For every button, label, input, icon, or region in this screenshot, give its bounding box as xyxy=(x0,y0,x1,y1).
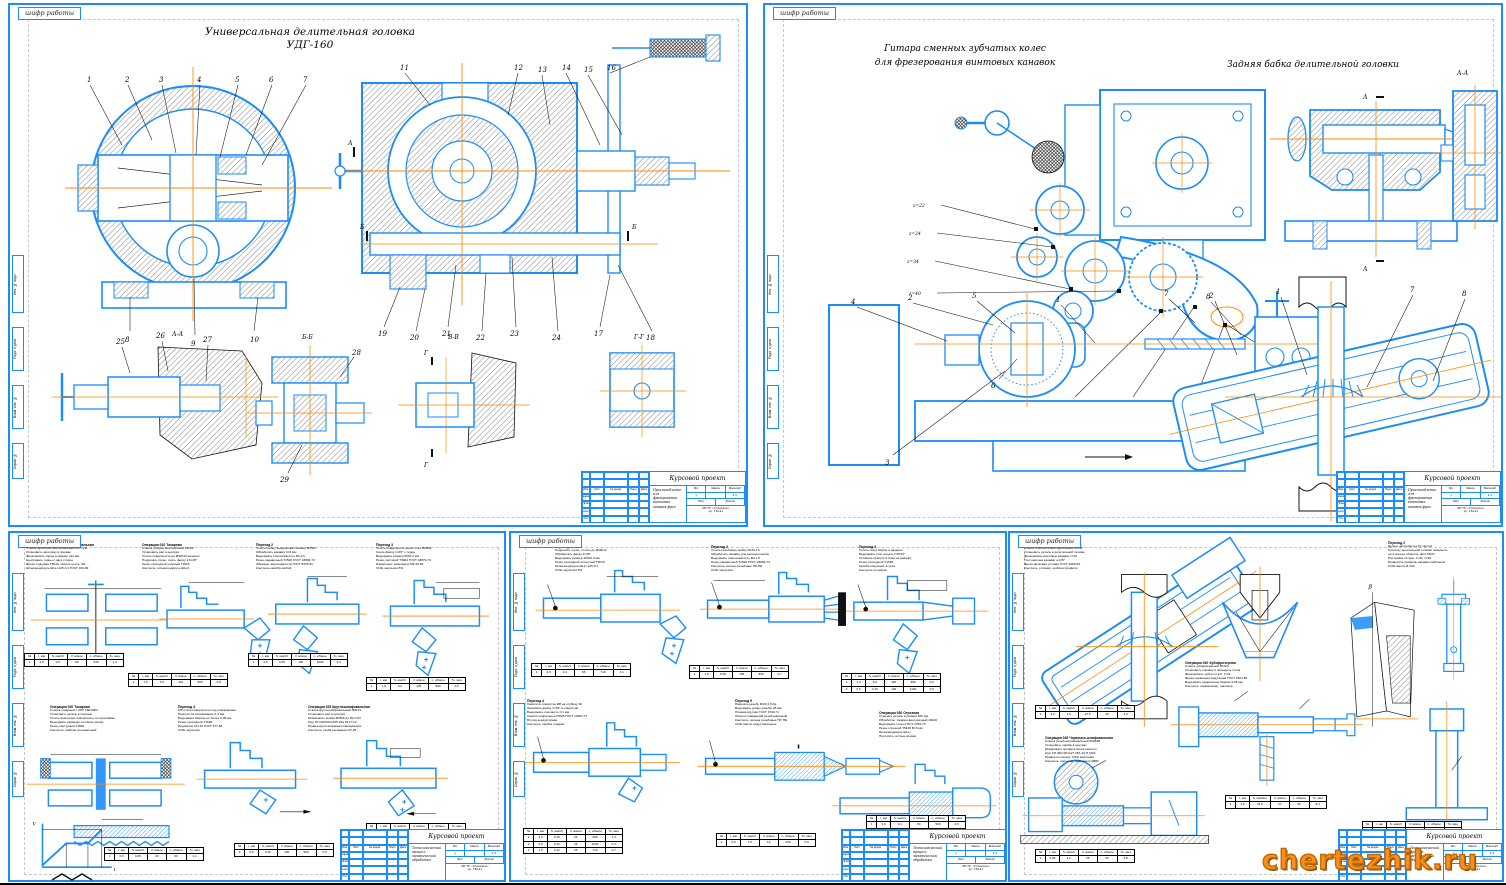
table-cell: 0,8 xyxy=(210,680,227,686)
frame-strip: Инв. № подл. Подп. и дата Взам. инв. № С… xyxy=(767,255,779,479)
title-block-project: Курсовой проект xyxy=(650,472,745,486)
svg-text:10: 10 xyxy=(250,336,259,344)
table-cell: 0,6 xyxy=(798,840,815,846)
svg-text:z=22: z=22 xyxy=(912,203,925,209)
operation-card: Переход 4 Сверлить отверстие Ø8 на глуби… xyxy=(527,699,677,727)
table-cell: 0,1 xyxy=(890,822,909,828)
svg-text:15: 15 xyxy=(584,66,593,74)
watermark: chertezhik.ru xyxy=(1262,845,1478,876)
svg-text:4: 4 xyxy=(196,76,201,84)
sketch-vertical-stand xyxy=(1406,701,1487,826)
table-cell: 0,9 xyxy=(948,822,965,828)
operation-body: Станок токарный с ЧПУ 16К20Ф3 Установить… xyxy=(50,709,168,733)
drawing-collage: { "page": { "watermark": "chertezhik.ru"… xyxy=(0,0,1506,885)
svg-text:1: 1 xyxy=(87,76,91,84)
operation-body: Станок токарно-винторезный 16К20 Установ… xyxy=(142,547,248,571)
param-table: №t, ммS, мм/обV, м/минn, об/минТо, мин13… xyxy=(1035,705,1135,719)
table-cell: 900 xyxy=(428,684,448,690)
title-block-project: Курсовой проект xyxy=(910,830,1005,844)
svg-text:25: 25 xyxy=(115,338,125,346)
table-cell: 1 xyxy=(717,840,727,846)
table-cell: 0,05 xyxy=(128,854,147,860)
table-cell: 1 xyxy=(532,670,542,676)
table-cell: 240 xyxy=(778,840,798,846)
table-cell: 30 xyxy=(147,854,166,860)
title-block-org: МГТУ «Станкин» гр. ТМ-41 xyxy=(1442,506,1500,523)
table-cell: 60 xyxy=(909,822,928,828)
param-table: №t, ммS, мм/обV, м/минn, об/минТо, мин11… xyxy=(128,673,228,687)
svg-text:7: 7 xyxy=(1164,290,1169,298)
table-cell: 1,5 xyxy=(534,847,548,853)
svg-text:2: 2 xyxy=(124,76,130,84)
table-row: 13,21,627,5404,2 xyxy=(1036,712,1135,718)
operation-card: Переход 2 Точить шейку, выдерживая разме… xyxy=(256,543,368,571)
title-block-mini-grid: Лит.МассаМасштаб у1:1 ЛистЛистов МГТУ «С… xyxy=(687,486,745,522)
sketch-drill xyxy=(698,741,906,781)
operation-body: Делить заготовку на 10 частей Рукоятку д… xyxy=(1388,545,1500,569)
svg-text:z=24: z=24 xyxy=(908,231,921,237)
param-table: №t, ммS, мм/обV, м/минn, об/минТо, мин14… xyxy=(523,828,623,854)
title-block-mini-grid: Лит.МассаМасштаб у1:1 ЛистЛистов МГТУ «С… xyxy=(446,844,504,880)
table-cell: 1,2 xyxy=(1059,856,1078,862)
table-row: 11,50,251058600,7 xyxy=(690,672,789,678)
operation-card: Операция 045 Червячно-шлифовальная Стано… xyxy=(1045,736,1195,764)
sheet-code-box: шифр работы xyxy=(18,535,81,548)
param-table: №t, ммS, мм/обV, м/минn, об/минТо, мин11… xyxy=(366,677,466,691)
table-cell: 1 xyxy=(129,680,139,686)
table-cell: 1,0 xyxy=(377,684,391,690)
sketch-turning xyxy=(197,743,312,814)
svg-text:3: 3 xyxy=(885,459,890,467)
sketch-grinding-setup xyxy=(1021,760,1209,843)
title-block: Изм.Лист№ докум.Подп.Дата Разраб. Пров. … xyxy=(581,471,746,523)
title-block-slot: Изм.Лист№ докум.Подп.Дата Разраб. Пров. … xyxy=(1336,471,1501,523)
table-row: 12,00,4957101,1 xyxy=(532,670,631,676)
sketch-turning xyxy=(383,580,490,675)
operation-card: Операция 030 Отрезная Отрезать деталь в … xyxy=(879,711,1001,739)
svg-text:Г: Г xyxy=(423,350,429,357)
param-table: №t, ммS, мм/обV, м/минn, об/минТо, мин10… xyxy=(104,847,204,861)
title-block-revision-grid: Изм.Лист№ докум.Подп.Дата Разраб. Пров. … xyxy=(842,830,910,880)
operation-card: Операция 010 Токарная Станок токарно-вин… xyxy=(142,543,248,571)
frame-strip: Инв. № подл. Подп. и дата Взам. инв. № С… xyxy=(1012,573,1024,797)
sketch-double-shaft-2 xyxy=(27,754,185,845)
table-cell: 0,5 xyxy=(259,660,273,666)
table-cell: 1100 xyxy=(903,686,923,692)
table-cell: 1 xyxy=(1036,712,1046,718)
title-block: Изм.Лист№ докум.Подп.Дата Разраб. Пров. … xyxy=(841,829,1006,881)
table-cell: 0,5 xyxy=(48,660,67,666)
table-cell: 1 xyxy=(25,660,35,666)
operation-card: Переход 3 Точить конус Морзе 2 начерно В… xyxy=(859,545,989,573)
param-table: №t, ммS, мм/обV, м/минn, об/минТо, мин10… xyxy=(234,843,334,857)
param-table: №t, ммS, мм/обV, м/минn, об/минТо, мин10… xyxy=(716,833,816,847)
operation-card: Переход 2 Делить заготовку на 10 частей … xyxy=(1388,541,1500,569)
table-cell: 27,5 xyxy=(1078,712,1097,718)
frame-strip: Инв. № подл. Подп. и дата Взам. инв. № С… xyxy=(12,255,24,479)
operation-body: Станок резьбошлифовальный 5К822В Установ… xyxy=(1045,740,1195,764)
svg-text:А: А xyxy=(1362,266,1368,273)
svg-text:А: А xyxy=(347,140,353,147)
svg-text:24: 24 xyxy=(551,334,561,342)
table-cell: 0,15 xyxy=(865,686,884,692)
view-tailstock: А А xyxy=(1270,94,1481,273)
table-cell: 27 xyxy=(1270,802,1289,808)
table-row: 10,30,0530632,1 xyxy=(105,854,204,860)
table-cell: 1 xyxy=(105,854,115,860)
table-cell: 0,12 xyxy=(547,847,566,853)
operation-body: Точить резьбовую шейку М16×1,5 Обработат… xyxy=(711,549,839,573)
svg-text:Б-Б: Б-Б xyxy=(301,334,313,341)
sketch-gauge xyxy=(1438,576,1470,679)
table-cell: 35 xyxy=(1078,856,1097,862)
svg-text:17: 17 xyxy=(594,330,603,338)
table-cell: 1,2 xyxy=(106,660,123,666)
title-block-project: Курсовой проект xyxy=(1405,472,1500,486)
sketch-taper-turning xyxy=(846,576,988,673)
table-cell: 63 xyxy=(1097,856,1117,862)
operation-body: Точить конус Морзе 2 начерно Выдержать у… xyxy=(859,549,989,573)
svg-text:28: 28 xyxy=(351,349,361,357)
table-cell: 0,9 xyxy=(727,840,741,846)
table-cell: 1,1 xyxy=(613,670,630,676)
table-cell: 0,8 xyxy=(245,850,259,856)
table-cell: 0,3 xyxy=(115,854,129,860)
sheet-code-box: шифр работы xyxy=(18,7,81,20)
svg-text:2: 2 xyxy=(1208,292,1214,300)
operation-card: Переход 4 Обточить поверхность под шлифо… xyxy=(178,705,296,733)
param-table: №t, ммS, мм/обV, м/минn, об/минТо, мин10… xyxy=(248,653,348,667)
table-row: 11,00,21259000,6 xyxy=(367,684,466,690)
sketch-turning xyxy=(700,573,846,626)
detail-view-3: В-В Г Г xyxy=(398,334,530,469)
operation-body: Точить поверхность начисто до Ø28h9 Снят… xyxy=(376,547,496,571)
title-block-revision-grid: Изм.Лист№ докум.Подп.Дата Разраб. Пров. … xyxy=(341,830,409,880)
operation-card: Переход 2 Точить резьбовую шейку М16×1,5… xyxy=(711,545,839,573)
table-cell: 0,05 xyxy=(1046,856,1060,862)
operation-body: Отрезать деталь в размер 180 мм Обработк… xyxy=(879,715,1001,739)
table-cell: 710 xyxy=(593,670,613,676)
operation-card: Переход 5 Нарезать резьбу М16×1,5-6g Выд… xyxy=(735,699,869,727)
table-row: 10,051,235636,8 xyxy=(1036,856,1135,862)
sheet2-drawing: Гитара сменных зубчатых колес для фрезер… xyxy=(765,5,1501,525)
table-cell: 3 xyxy=(524,847,534,853)
svg-text:29: 29 xyxy=(279,476,289,484)
operation-card: Операция 040 Зубофрезерная Станок зубофр… xyxy=(1185,661,1345,689)
title-block-project: Курсовой проект xyxy=(1407,830,1502,844)
table-cell: 0,4 xyxy=(330,660,347,666)
cut-mark xyxy=(50,870,110,884)
sheet-udg-160: шифр работы Инв. № подл. Подп. и дата Вз… xyxy=(8,3,748,527)
svg-text:3: 3 xyxy=(159,76,164,84)
svg-text:z=34: z=34 xyxy=(906,259,919,265)
table-cell: 120 xyxy=(277,850,296,856)
table-row: 10,80,151209500,5 xyxy=(235,850,334,856)
detail-view-2: Б-Б 28 29 xyxy=(248,334,372,484)
title-block-org: МГТУ «Станкин» гр. ТМ-41 xyxy=(687,506,745,523)
svg-text:27: 27 xyxy=(202,336,212,344)
sheet2-subtitle: для фрезерования винтовых канавок xyxy=(875,58,1056,68)
sketch-worm-shaft xyxy=(1171,691,1363,786)
table-cell: 1 xyxy=(690,672,700,678)
svg-text:4: 4 xyxy=(850,298,855,306)
title-block-description: Технологический процесс механической обр… xyxy=(910,844,947,880)
param-table: №t, ммS, мм/обV, м/минn, об/минТо, мин12… xyxy=(531,663,631,677)
table-row: 12,50,5906301,2 xyxy=(25,660,124,666)
table-cell: 1 xyxy=(235,850,245,856)
sketch-turning xyxy=(536,571,686,664)
table-cell: 110 xyxy=(171,680,190,686)
operation-card: Переход 1 Подрезать торец, точить до Ø30… xyxy=(555,545,687,573)
operation-body: Точить шейку, выдерживая размер Ø25к6 Об… xyxy=(256,547,368,571)
table-cell: 800 xyxy=(190,680,210,686)
view-dividing-head-front xyxy=(65,67,332,321)
title-block-slot: Изм.Лист№ докум.Подп.Дата Разраб. Пров. … xyxy=(841,829,1006,881)
svg-text:5: 5 xyxy=(235,76,240,84)
table-cell: 95 xyxy=(574,670,593,676)
operation-body: Станок фрезерно-центровальный МР-71М Уст… xyxy=(26,547,134,571)
table-cell: 1 xyxy=(367,684,377,690)
table-cell: 860 xyxy=(751,672,771,678)
svg-text:5: 5 xyxy=(972,292,977,300)
svg-text:1: 1 xyxy=(1056,296,1060,304)
svg-text:Б: Б xyxy=(359,224,365,231)
table-row: 20,50,1512611000,5 xyxy=(842,686,941,692)
table-cell: 105 xyxy=(732,672,751,678)
table-cell: 710 xyxy=(585,847,605,853)
sketch-turning xyxy=(159,582,270,663)
operation-body: Обточить поверхность под шлифование Прип… xyxy=(178,709,296,733)
svg-text:26: 26 xyxy=(155,332,165,340)
svg-text:6: 6 xyxy=(269,76,274,84)
table-cell: 0,2 xyxy=(390,684,409,690)
svg-text:t: t xyxy=(114,868,116,873)
title-block-description: Приспособление для фрезерования винтовых… xyxy=(650,486,687,522)
svg-text:12: 12 xyxy=(514,64,523,72)
svg-text:V: V xyxy=(33,823,37,828)
title-block: Изм.Лист№ докум.Подп.Дата Разраб. Пров. … xyxy=(1336,471,1501,523)
operation-body: Подрезать торец, точить до Ø30h12 Обрабо… xyxy=(555,549,687,573)
table-cell: 12 xyxy=(759,840,778,846)
table-cell: 0,5 xyxy=(852,686,866,692)
svg-text:Г: Г xyxy=(423,462,429,469)
table-cell: 8,4 xyxy=(1309,802,1326,808)
title-block: Изм.Лист№ докум.Подп.Дата Разраб. Пров. … xyxy=(340,829,505,881)
table-cell: 2,5 xyxy=(1236,802,1250,808)
table-row: 11,50,31108000,8 xyxy=(129,680,228,686)
svg-text:23: 23 xyxy=(509,330,519,338)
table-cell: 1,6 xyxy=(1059,712,1078,718)
title-block-revision-grid: Изм.Лист№ докум.Подп.Дата Разраб. Пров. … xyxy=(582,472,650,522)
param-table: №t, ммS, мм/обV, м/минn, об/минТо, мин11… xyxy=(841,673,941,693)
table-row: 10,50,2514010000,4 xyxy=(249,660,348,666)
svg-text:Б: Б xyxy=(631,224,637,231)
detail-view-4: Г-Г xyxy=(600,334,686,437)
table-cell: 125 xyxy=(409,684,428,690)
sheet-process-1: шифр работы Инв. № подл. Подп. и дата Вз… xyxy=(8,531,506,882)
svg-text:6: 6 xyxy=(991,382,996,390)
table-cell: 90 xyxy=(67,660,86,666)
table-cell: 560 xyxy=(928,822,948,828)
svg-text:2: 2 xyxy=(907,294,913,302)
sketch-drilling xyxy=(526,723,680,802)
table-cell: 40 xyxy=(1097,712,1117,718)
table-cell: 0,5 xyxy=(316,850,333,856)
sheet1-subtitle: УДГ-160 xyxy=(287,39,334,51)
table-cell: 3,2 xyxy=(1046,712,1060,718)
table-cell: 1 xyxy=(1226,802,1236,808)
title-block-org: МГТУ «Станкин» гр. ТМ-41 xyxy=(947,864,1005,881)
svg-text:19: 19 xyxy=(378,330,387,338)
frame-strip: Инв. № подл. Подп. и дата Взам. инв. № С… xyxy=(513,573,525,797)
sheet2-title-right: Задняя бабка делительной головки xyxy=(1227,59,1399,70)
view-dividing-head-side xyxy=(335,35,730,305)
svg-text:11: 11 xyxy=(400,64,409,72)
svg-text:14: 14 xyxy=(562,64,571,72)
svg-text:8: 8 xyxy=(125,336,130,344)
sheet-code-box: шифр работы xyxy=(773,7,836,20)
table-cell: 2,0 xyxy=(542,670,556,676)
table-row: 10,91,5122400,6 xyxy=(717,840,816,846)
detail-view-1: 25 26 А-А 27 xyxy=(52,331,278,459)
table-cell: 25 xyxy=(566,847,585,853)
svg-text:9: 9 xyxy=(191,340,196,348)
param-table: №t, ммS, мм/минV, м/минn, об/минТо, мин1… xyxy=(1225,795,1327,809)
operation-body: Станок круглошлифовальный 3М131 Установи… xyxy=(308,709,438,733)
title-block-org: МГТУ «Станкин» гр. ТМ-41 xyxy=(446,864,504,881)
sketch-turning xyxy=(333,741,448,816)
operation-card: Операция 020 Токарная Станок токарный с … xyxy=(50,705,168,733)
table-cell: 56 xyxy=(1289,802,1309,808)
operation-card: Операция 025 Круглошлифовальная Станок к… xyxy=(308,705,438,733)
table-cell: 1,5 xyxy=(700,672,714,678)
title-block-slot: Изм.Лист№ докум.Подп.Дата Разраб. Пров. … xyxy=(340,829,505,881)
table-cell: 1 xyxy=(867,822,877,828)
param-table: №t, ммS, мм/обV, м/минn, об/минТо, мин12… xyxy=(24,653,124,667)
sheet-process-2: шифр работы Инв. № подл. Подп. и дата Вз… xyxy=(509,531,1007,882)
table-cell: 630 xyxy=(86,660,106,666)
svg-text:7: 7 xyxy=(1410,286,1415,294)
table-cell: 140 xyxy=(291,660,310,666)
svg-text:13: 13 xyxy=(538,66,547,74)
table-cell: 0,7 xyxy=(605,847,622,853)
svg-text:16: 16 xyxy=(607,64,616,72)
table-cell: 1 xyxy=(1036,856,1046,862)
table-row: 13,00,1605600,9 xyxy=(867,822,966,828)
table-cell: 1,5 xyxy=(139,680,153,686)
table-cell: 0,7 xyxy=(771,672,788,678)
table-cell: 4,2 xyxy=(1117,712,1134,718)
table-row: 12,531,527568,4 xyxy=(1226,802,1327,808)
sketch-tool-geometry: β xyxy=(1345,583,1418,726)
svg-text:20: 20 xyxy=(409,334,419,342)
svg-text:А: А xyxy=(1362,94,1368,101)
title-block-project: Курсовой проект xyxy=(409,830,504,844)
table-cell: 1000 xyxy=(310,660,330,666)
table-cell: 1,5 xyxy=(740,840,759,846)
sheet1-title: Универсальная делительная головка xyxy=(205,26,415,38)
table-cell: 0,5 xyxy=(923,686,940,692)
table-cell: 3,0 xyxy=(877,822,891,828)
table-cell: 0,25 xyxy=(713,672,732,678)
table-cell: 0,4 xyxy=(555,670,574,676)
frame-strip: Инв. № подл. Подп. и дата Взам. инв. № С… xyxy=(12,573,24,797)
section-label: А-А xyxy=(1456,70,1469,77)
sheet1-drawing: Универсальная делительная головка УДГ-16… xyxy=(10,5,746,525)
table-cell: 2,5 xyxy=(35,660,49,666)
operation-card: Переход 3 Точить поверхность начисто до … xyxy=(376,543,496,571)
table-row: 31,50,12257100,7 xyxy=(524,847,623,853)
svg-text:18: 18 xyxy=(646,334,655,342)
table-cell: 0,6 xyxy=(448,684,465,690)
table-cell: 1 xyxy=(249,660,259,666)
table-cell: 0,3 xyxy=(152,680,171,686)
sheet-gear-train: шифр работы Инв. № подл. Подп. и дата Вз… xyxy=(763,3,1503,527)
table-cell: 2 xyxy=(842,686,852,692)
operation-body: Сверлить отверстие Ø8 на глубину 40 Зенк… xyxy=(527,703,677,727)
title-block-slot: Изм.Лист№ докум.Подп.Дата Разраб. Пров. … xyxy=(581,471,746,523)
table-cell: 126 xyxy=(884,686,903,692)
title-block-description: Технологический процесс механической обр… xyxy=(409,844,446,880)
operation-body: Станок зубофрезерный 5К32А Установить оп… xyxy=(1185,665,1345,689)
title-block-mini-grid: Лит.МассаМасштаб у1:1 ЛистЛистов МГТУ «С… xyxy=(947,844,1005,880)
title-block-revision-grid: Изм.Лист№ докум.Подп.Дата Разраб. Пров. … xyxy=(1337,472,1405,522)
table-cell: 0,25 xyxy=(272,660,291,666)
table-cell: 0,15 xyxy=(258,850,277,856)
section-a-a xyxy=(1433,85,1501,229)
param-table: №t, ммS, мм/обV, м/минn, об/минТо, мин11… xyxy=(689,665,789,679)
svg-text:7: 7 xyxy=(303,76,308,84)
sheet-code-box: шифр работы xyxy=(519,535,582,548)
table-cell: 31,5 xyxy=(1249,802,1270,808)
title-block-mini-grid: Лит.МассаМасштаб у1:1 ЛистЛистов МГТУ «С… xyxy=(1442,486,1500,522)
svg-text:1: 1 xyxy=(1276,288,1280,296)
svg-text:8: 8 xyxy=(1462,290,1467,298)
svg-text:В-В: В-В xyxy=(447,334,459,341)
table-cell: 63 xyxy=(166,854,186,860)
svg-text:22: 22 xyxy=(475,334,485,342)
param-table: №t, ммS, мм/обV, м/минn, об/минТо, мин10… xyxy=(1035,849,1135,863)
param-table: №t, ммS, мм/обV, м/минn, об/минТо, мин13… xyxy=(866,815,966,829)
table-cell: 950 xyxy=(296,850,316,856)
operation-body: Станок горизонтально-фрезерный 6Р82Г Уст… xyxy=(1024,547,1154,571)
sheet-code-box: шифр работы xyxy=(1018,535,1081,548)
svg-text:β: β xyxy=(1368,583,1373,590)
svg-text:А-А: А-А xyxy=(171,331,184,338)
table-cell: 2,1 xyxy=(186,854,203,860)
svg-text:Г-Г: Г-Г xyxy=(633,334,645,341)
sheet2-title: Гитара сменных зубчатых колес xyxy=(883,43,1046,54)
operation-body: Нарезать резьбу М16×1,5-6g Выдержать дли… xyxy=(735,703,869,727)
sheet-process-3: шифр работы Инв. № подл. Подп. и дата Вз… xyxy=(1008,531,1504,882)
title-block-description: Приспособление для фрезерования винтовых… xyxy=(1405,486,1442,522)
table-cell: 6,8 xyxy=(1117,856,1134,862)
